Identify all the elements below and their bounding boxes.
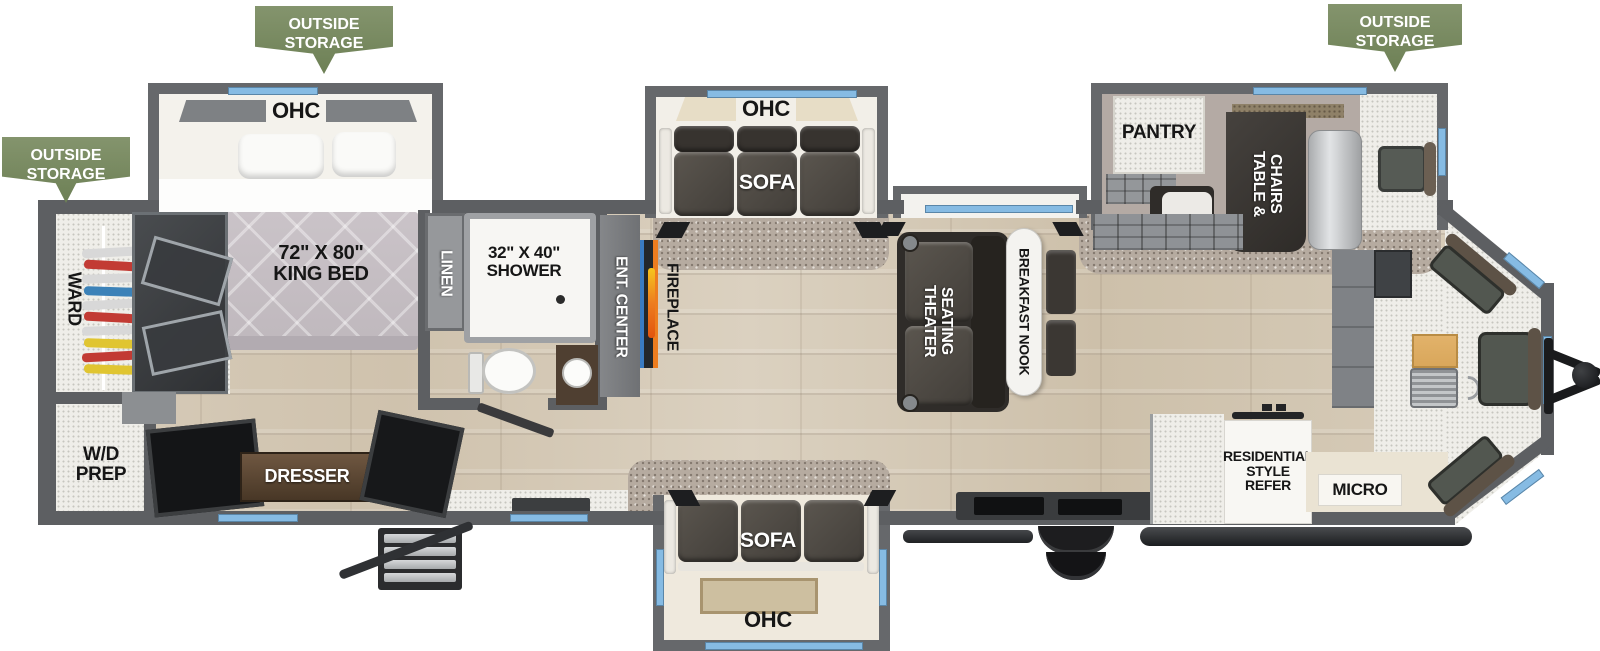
pantry-tall-cabinet [1150,414,1224,524]
pantry-label: PANTRY [1115,118,1203,148]
window-hall [510,514,588,522]
window-bedroom-slide [228,87,318,95]
top-sofa-label: SOFA [737,168,797,198]
theater-cupholder-2 [901,394,919,412]
theater-seating-label: THEATER SEATING [912,266,962,376]
hanger-8 [84,338,138,349]
theater-cupholder-1 [901,234,919,252]
nose-window-front-glass [1478,332,1534,406]
window-theater-slide [925,205,1073,213]
bed-pillow-right [332,132,396,177]
main-entry-steps-lower [1046,552,1106,580]
bottom-sofa-seat-3 [804,500,864,562]
hanger-3 [82,273,136,284]
main-entry-steps-upper [1038,526,1114,554]
bedroom-ohc-cabinet-left [179,100,269,122]
wd-prep-label: W/D PREP [58,440,144,490]
nook-stool-1 [1046,250,1076,314]
theater-sofa-back [971,236,1005,408]
cutting-board [1412,334,1458,368]
dinette-bench [1308,130,1362,250]
bedroom-ohc-cabinet-right [317,100,417,122]
linen-label: LINEN [429,228,461,318]
refer-knob-2 [1276,404,1286,411]
shower-drain [556,295,565,304]
theater-slideout [893,186,1087,218]
toilet-bowl [482,348,536,394]
king-bed-foot [224,336,418,350]
top-sofa-back-3 [800,126,860,152]
badge-outside-storage-top-right: OUTSIDE STORAGE [1328,4,1462,72]
cooktop [1374,250,1412,298]
bath-sink [562,358,592,388]
wall-top-3 [877,200,904,214]
top-sofa-armrest-left [659,128,672,214]
top-sofa-seat-3 [800,152,860,216]
island-sink-basin [974,497,1044,515]
top-sofa-back-1 [674,126,734,152]
wall-top-4 [1076,200,1102,214]
wall-top-2 [432,200,656,214]
island-sink-cover [1058,499,1122,515]
window-bottom-sofa-bottom [705,642,863,650]
badge-outside-storage-left: OUTSIDE STORAGE [2,137,130,203]
bottom-ohc-label: OHC [738,606,798,634]
dinette-end-window-bolster [1424,142,1436,196]
window-dinette-right [1438,128,1446,176]
nose-window-front-bolster [1528,328,1541,410]
wall-rear [38,200,56,525]
bottom-sofa-seat-1 [678,500,738,562]
hanger-10 [84,364,138,375]
refer-label: RESIDENTIAL STYLE REFER [1224,438,1312,504]
hanger-7 [82,325,136,336]
bottom-sofa-armrest-right [867,500,879,574]
dresser-label: DRESSER [248,460,366,494]
wd-platform [122,392,176,424]
bottom-sofa-label: SOFA [738,526,798,556]
bedroom-tv-right [359,410,464,518]
step-tread-4 [384,573,456,582]
awning-rail-left [903,530,1033,543]
top-sofa-back-2 [737,126,797,152]
kitchen-sink [1410,368,1458,408]
breakfast-nook-label: BREAKFAST NOOK [1008,238,1040,386]
shower-label: 32" X 40" SHOWER [474,238,574,286]
dinette-end-window [1378,146,1426,192]
top-sofa-ohc-label: OHC [736,96,796,122]
hanger-4 [84,286,138,297]
hitch-coupler [1572,362,1598,388]
nook-stool-2 [1046,320,1076,376]
bed-pillow-left [238,134,324,179]
king-bed-label: 72" X 80" KING BED [244,240,398,288]
refer-knob-1 [1262,404,1272,411]
floorplan-canvas: OHC 72" X 80" KING BED WARD W/D PREP DRE… [0,0,1600,651]
fireplace-flame [648,268,655,338]
bottom-sofa-front-strip [678,562,864,571]
awning-rail-right [1140,527,1472,546]
ent-center-label: ENT. CENTER [606,232,634,382]
ward-label: WARD [62,256,86,342]
step-tread-3 [384,560,456,569]
refer-handle-bar [1232,412,1304,419]
micro-label: MICRO [1318,476,1402,504]
window-bottom-sofa-left [656,549,664,606]
top-sofa-seat-1 [674,152,734,216]
bed-sheet [159,179,432,213]
galley-counter-shelves [1093,214,1243,250]
window-bottom-left [218,514,298,522]
window-bottom-sofa-right [879,549,887,606]
bottom-sofa-armrest-left [664,500,676,574]
bedroom-ohc-label: OHC [266,98,326,124]
top-sofa-armrest-right [862,128,875,214]
window-dinette-top [1253,87,1367,95]
kitchen-cabinet-band [1332,250,1374,408]
wall-bath-bottom-1 [418,398,480,410]
badge-outside-storage-top-left: OUTSIDE STORAGE [255,6,393,74]
fireplace-label: FIREPLACE [658,252,684,362]
table-chairs-label: TABLE & CHAIRS [1238,130,1294,238]
window-top-sofa-slide [707,90,857,98]
